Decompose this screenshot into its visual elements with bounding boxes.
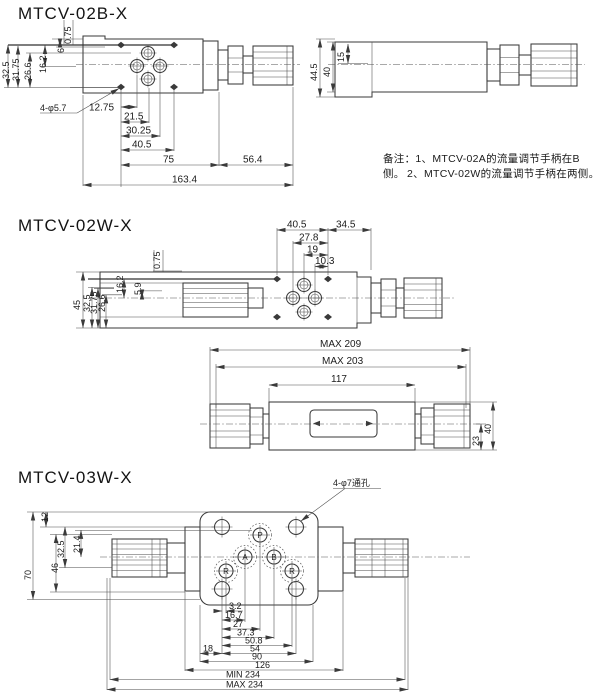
fig2-drawing: 40.5 34.5 27.8 19 10.3 45 32.5 31.75 26.… [0,212,600,464]
fig2-plan-view [88,272,455,328]
port-label: P [257,531,262,540]
dim-label: 21.4 [72,535,82,553]
dim-label: 56.4 [243,155,263,166]
dim-label: 126 [255,660,270,670]
dim-label: 21.5 [124,112,144,123]
fig1-side-view: 44.5 40 15 [309,39,585,97]
dim-label: 31.75 [11,58,21,81]
dim-label: 44.5 [309,63,319,81]
dim-label: 23 [471,436,481,446]
dim-label: 0.75 [152,251,162,269]
dim-label: 40.5 [132,140,152,151]
dim-label: 19 [307,245,319,256]
dim-label: 12 [40,512,50,522]
dim-label: 5.9 [133,282,143,295]
dim-label: 46 [50,563,60,573]
dim-label: 40.5 [287,220,307,231]
dim-label: 32.5 [56,540,66,558]
hole-callout-label: 4-φ7通孔 [333,478,370,488]
port-label: A [242,553,248,562]
fig1-bottom-dims: 12.75 21.5 30.25 40.5 75 56.4 163.4 [83,75,293,187]
fig3-plan-view: P A B R R [100,512,470,605]
dim-label: 70 [23,570,33,580]
hole-callout-label: 4-φ5.7 [40,103,66,113]
dim-label: 75 [163,155,175,166]
dim-label: MAX 203 [322,356,364,367]
dim-label: 26.6 [97,294,107,312]
dim-label: 10.3 [315,256,335,267]
dim-label: 0.75 [63,26,73,44]
dim-label: 6 [56,48,66,53]
fig3-left-dims: 12 32.5 21.4 70 46 [23,512,252,600]
fig1-ports [129,45,169,88]
dim-label: 18 [203,644,213,654]
fig1-left-dims: 32.5 31.75 26.6 16.2 6 0.75 [1,20,131,88]
dim-label: 45 [72,300,82,310]
port-label: R [289,567,295,576]
dim-label: 12.75 [89,103,114,114]
fig3-hole-callout: 4-φ7通孔 [301,478,381,521]
dim-label: 163.4 [172,175,197,186]
dim-label: 30.25 [126,126,151,137]
dim-label: 26.6 [23,62,33,80]
dim-label: 16.2 [115,275,125,293]
dim-label: MAX 209 [320,339,362,350]
fig1-plan-view [8,36,300,93]
dim-label: 117 [331,374,347,385]
fig3-drawing: P A B R R 4-φ7通孔 12 [0,464,600,696]
fig2-side-view: MAX 209 MAX 203 117 23 40 [200,339,497,450]
fig2-left-dims: 45 32.5 31.75 26.6 16.2 5.9 0.75 [72,250,182,328]
port-label: B [271,553,276,562]
dim-label: MIN 234 [226,670,260,680]
port-label: R [223,567,229,576]
dim-label: 27.8 [299,233,319,244]
dim-label: 32.5 [1,61,11,79]
fig2-ports [285,277,324,321]
dim-label: 15 [336,52,346,62]
dim-label: MAX 234 [226,680,263,690]
dim-label: 16.2 [38,55,48,73]
dim-label: 40 [322,67,332,77]
dim-label: 34.5 [336,220,356,231]
catalog-page: MTCV-02B-X [0,0,600,696]
dim-label: 40 [483,424,493,434]
note-line-2: 2、MTCV-02W的流量调节手柄在两侧。 [407,166,599,181]
